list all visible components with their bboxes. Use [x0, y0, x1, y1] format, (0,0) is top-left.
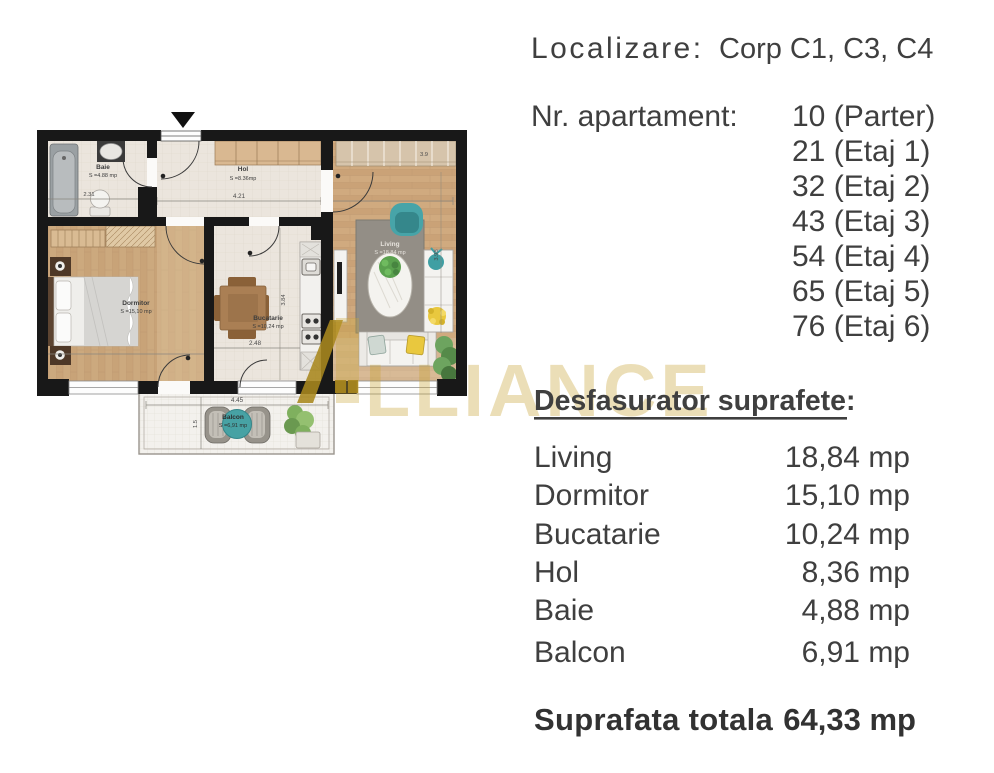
svg-text:S =6,91 mp: S =6,91 mp [219, 423, 247, 429]
svg-text:S =18,84 mp: S =18,84 mp [374, 250, 405, 256]
svg-text:Hol: Hol [238, 166, 249, 173]
svg-text:3.98: 3.98 [434, 249, 440, 260]
svg-text:4,88 mp: 4,88 mp [802, 594, 910, 627]
svg-text:Balcon: Balcon [222, 414, 244, 421]
svg-text:Baie: Baie [96, 164, 110, 171]
svg-text:Hol: Hol [534, 556, 579, 589]
svg-text:S =15,10 mp: S =15,10 mp [120, 309, 151, 315]
svg-text:Balcon: Balcon [534, 636, 626, 669]
svg-text:Desfasurator suprafete:: Desfasurator suprafete: [534, 385, 856, 417]
svg-text:8,36 mp: 8,36 mp [802, 556, 910, 589]
svg-text:S =8.36mp: S =8.36mp [230, 176, 257, 182]
svg-text:S =10,24 mp: S =10,24 mp [252, 324, 283, 330]
svg-text:Dormitor: Dormitor [122, 300, 150, 307]
svg-text:76 (Etaj 6): 76 (Etaj 6) [792, 310, 930, 343]
svg-text:4.45: 4.45 [231, 397, 244, 404]
svg-text:32 (Etaj 2): 32 (Etaj 2) [792, 170, 930, 203]
svg-text:Bucatarie: Bucatarie [253, 315, 283, 322]
svg-text:10,24 mp: 10,24 mp [785, 518, 910, 551]
svg-text:10 (Parter): 10 (Parter) [792, 100, 935, 133]
svg-text:Nr. apartament:: Nr. apartament: [531, 100, 738, 133]
svg-text:1.5: 1.5 [193, 420, 199, 428]
svg-text:Dormitor: Dormitor [534, 479, 649, 512]
svg-text:18,84 mp: 18,84 mp [785, 441, 910, 474]
svg-text:Living: Living [534, 441, 612, 474]
svg-text:Corp C1, C3, C4: Corp C1, C3, C4 [719, 33, 933, 65]
svg-text:54 (Etaj 4): 54 (Etaj 4) [792, 240, 930, 273]
svg-text:Baie: Baie [534, 594, 594, 627]
svg-text:4.21: 4.21 [233, 193, 246, 200]
svg-text:Bucatarie: Bucatarie [534, 518, 661, 551]
svg-text:6,91 mp: 6,91 mp [802, 636, 910, 669]
svg-text:64,33 mp: 64,33 mp [783, 702, 916, 737]
svg-text:43 (Etaj 3): 43 (Etaj 3) [792, 205, 930, 238]
svg-text:Suprafata totala: Suprafata totala [534, 702, 774, 737]
svg-text:2.31: 2.31 [83, 192, 94, 198]
svg-text:15,10 mp: 15,10 mp [785, 479, 910, 512]
svg-text:3.9: 3.9 [420, 152, 428, 158]
svg-text:S =4.88 mp: S =4.88 mp [89, 173, 117, 179]
svg-text:Living: Living [380, 241, 399, 248]
svg-text:21 (Etaj 1): 21 (Etaj 1) [792, 135, 930, 168]
svg-text:3.84: 3.84 [281, 294, 287, 306]
svg-text:65 (Etaj 5): 65 (Etaj 5) [792, 275, 930, 308]
svg-text:2.48: 2.48 [249, 340, 262, 347]
svg-text:Localizare:: Localizare: [531, 32, 704, 65]
